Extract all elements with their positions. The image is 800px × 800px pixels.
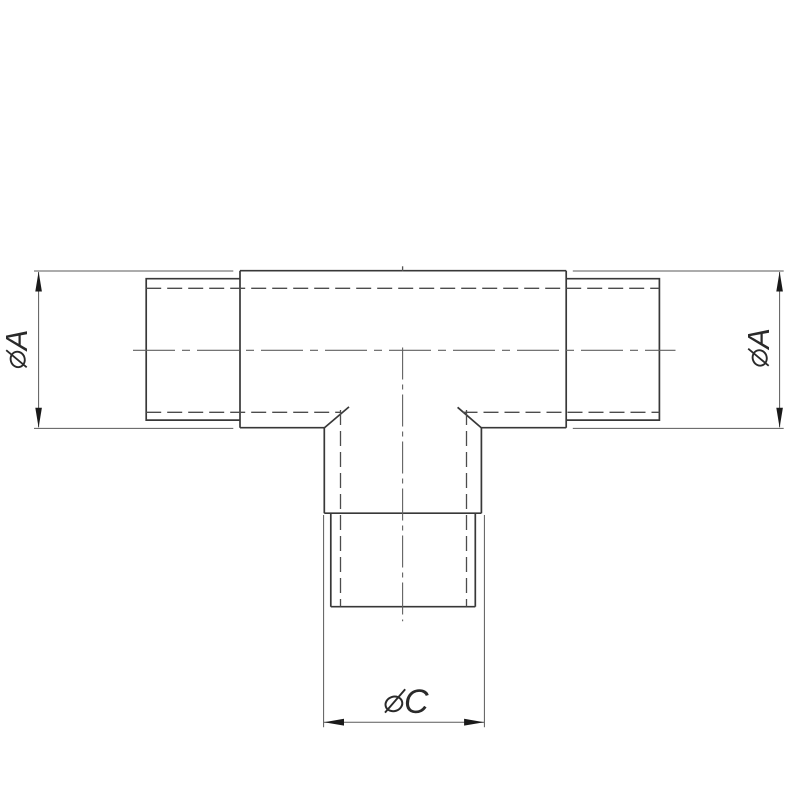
svg-text:C: C xyxy=(404,683,429,721)
svg-text:A: A xyxy=(741,328,776,351)
svg-text:A: A xyxy=(0,330,34,353)
